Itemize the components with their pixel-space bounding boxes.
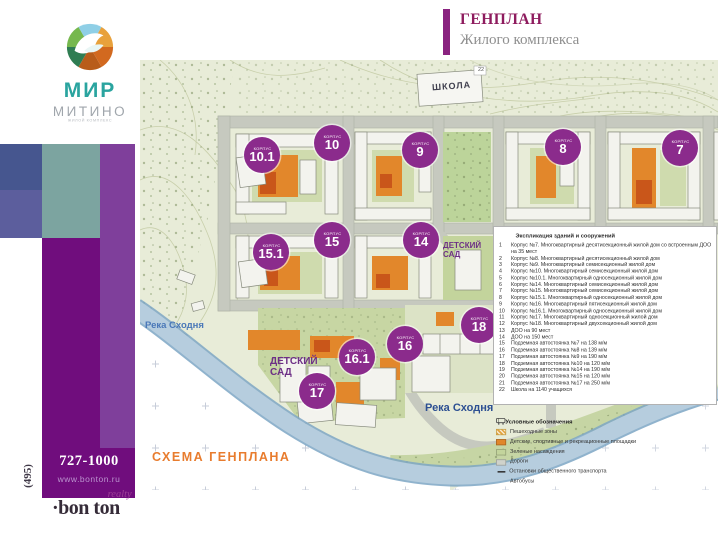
agency-name: ·bon ton <box>52 497 120 519</box>
building-marker-8: КОРПУС8 <box>545 129 581 165</box>
symbols-legend: Условные обозначения Пешеходные зоны Дет… <box>496 418 678 490</box>
building-marker-9: КОРПУС9 <box>402 132 438 168</box>
building-marker-10-1: КОРПУС10.1 <box>244 137 280 173</box>
building-marker-16: КОРПУС16 <box>387 326 423 362</box>
website-url: www.bonton.ru <box>46 474 132 484</box>
explication-item: 1Корпус №7. Многоквартирный десятисекцио… <box>499 243 713 256</box>
scheme-caption: СХЕМА ГЕНПЛАНА <box>152 450 290 464</box>
kindergarten-label-right: ДЕТСКИЙ САД <box>443 242 485 260</box>
building-marker-14: КОРПУС14 <box>403 222 439 258</box>
building-marker-16-1: КОРПУС16.1 <box>339 339 375 375</box>
explication-panel: Экспликация зданий и сооружений 1Корпус … <box>493 226 717 405</box>
genplan-map: ШКОЛА 22 ДЕТСКИЙ САД ДЕТСКИЙ САД Река Сх… <box>140 60 718 490</box>
building-marker-10: КОРПУС10 <box>314 125 350 161</box>
legend-item: Автобусы <box>496 479 714 486</box>
agency-type: realty <box>108 489 132 500</box>
explication-title: Экспликация зданий и сооружений <box>516 232 713 239</box>
legend-item: Зеленые насаждения <box>496 449 714 456</box>
logo-brand: МИР <box>38 79 142 103</box>
legend-item: Дороги <box>496 459 714 466</box>
building-marker-15-1: КОРПУС15.1 <box>253 234 289 270</box>
road-swatch <box>496 459 506 465</box>
building-marker-7: КОРПУС7 <box>662 130 698 166</box>
logo-tagline: ЖИЛОЙ КОМПЛЕКС <box>58 119 122 123</box>
legend-item: Детские, спортивные и рекреационные площ… <box>496 439 714 446</box>
page-subtitle: Жилого комплекса <box>460 32 579 49</box>
river-label-lower: Река Сходня <box>425 402 493 414</box>
greenery-swatch <box>496 449 506 455</box>
decor-block-darkblue <box>0 144 42 190</box>
page-title: ГЕНПЛАН <box>460 11 543 29</box>
playground-swatch <box>496 439 506 445</box>
legend-item: Пешеходные зоны <box>496 429 714 436</box>
agency-logo: ·bon ton realty <box>52 497 120 520</box>
logo-district: МИТИНО <box>38 104 142 119</box>
phone-area-code: (495) <box>22 448 34 504</box>
building-marker-18: КОРПУС18 <box>461 307 497 343</box>
transport-stop-icon <box>498 471 506 473</box>
logo-emblem-icon <box>65 22 115 72</box>
building-marker-15: КОРПУС15 <box>314 222 350 258</box>
river-label-upper: Река Сходня <box>145 320 204 331</box>
decor-block-teal <box>42 144 100 238</box>
explication-item: 22Школа на 1140 учащихся <box>499 387 713 394</box>
slide: МИР МИТИНО ЖИЛОЙ КОМПЛЕКС (495) 727-1000… <box>0 0 720 540</box>
bus-icon <box>496 479 506 486</box>
decor-block-magenta <box>42 238 100 448</box>
developer-logo: МИР МИТИНО ЖИЛОЙ КОМПЛЕКС <box>38 22 142 125</box>
legend-item: Остановки общественного транспорта <box>496 469 714 476</box>
decor-block-slate <box>0 190 42 238</box>
building-marker-17: КОРПУС17 <box>299 373 335 409</box>
pedestrian-zone-swatch <box>496 429 506 435</box>
phone-number: 727-1000 <box>46 453 132 470</box>
symbols-legend-title: Условные обозначения <box>505 418 714 425</box>
school-number-badge: 22 <box>478 67 484 73</box>
title-accent-bar <box>443 9 450 55</box>
decor-block-purple-strip <box>100 144 135 448</box>
